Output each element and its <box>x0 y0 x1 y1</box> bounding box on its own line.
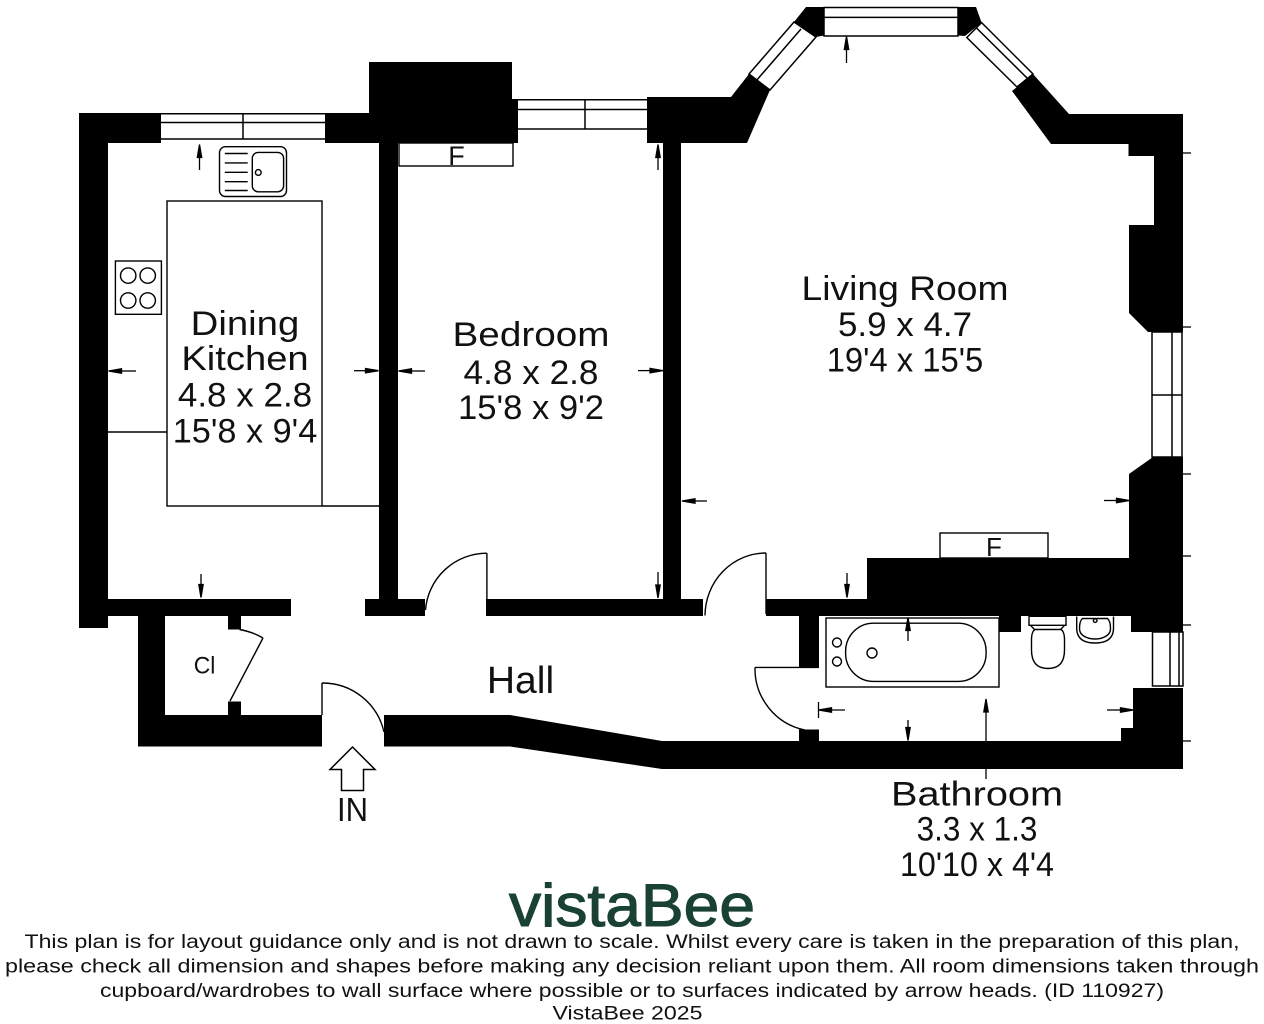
svg-text:Bathroom: Bathroom <box>891 776 1063 814</box>
svg-text:15'8 x 9'2: 15'8 x 9'2 <box>458 389 604 427</box>
svg-text:19'4 x 15'5: 19'4 x 15'5 <box>827 341 984 379</box>
svg-text:cupboard/wardrobes to wall sur: cupboard/wardrobes to wall surface where… <box>100 981 1164 1002</box>
svg-text:Living Room: Living Room <box>802 270 1009 308</box>
svg-text:15'8 x 9'4: 15'8 x 9'4 <box>173 413 318 451</box>
svg-text:Dining: Dining <box>191 305 300 343</box>
svg-text:vistaBee: vistaBee <box>509 872 755 939</box>
svg-text:Cl: Cl <box>194 653 216 680</box>
svg-text:please check all dimension and: please check all dimension and shapes be… <box>5 957 1259 978</box>
svg-text:5.9 x 4.7: 5.9 x 4.7 <box>838 306 972 344</box>
svg-text:4.8 x 2.8: 4.8 x 2.8 <box>464 354 599 392</box>
svg-text:3.3 x 1.3: 3.3 x 1.3 <box>917 811 1038 849</box>
svg-text:Bedroom: Bedroom <box>453 316 610 354</box>
svg-text:This plan is for layout guidan: This plan is for layout guidance only an… <box>25 932 1240 953</box>
svg-text:4.8 x 2.8: 4.8 x 2.8 <box>178 377 312 415</box>
svg-text:Kitchen: Kitchen <box>181 340 308 378</box>
svg-text:IN: IN <box>337 791 368 828</box>
svg-text:10'10 x 4'4: 10'10 x 4'4 <box>900 846 1054 884</box>
svg-text:F: F <box>986 532 1002 562</box>
svg-text:VistaBee 2025: VistaBee 2025 <box>553 1004 703 1024</box>
svg-text:F: F <box>448 141 465 171</box>
svg-text:Hall: Hall <box>487 660 554 702</box>
